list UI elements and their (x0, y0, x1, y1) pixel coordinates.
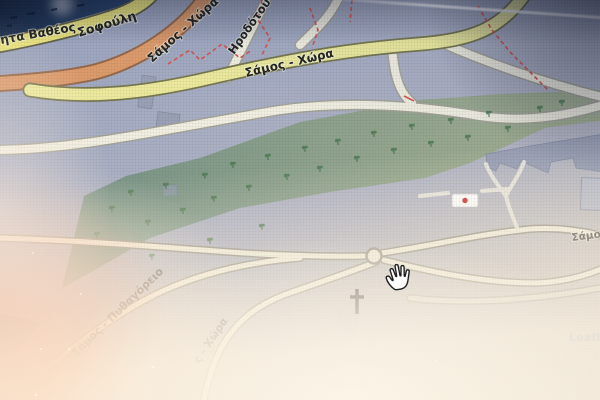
tree-icon (207, 238, 213, 244)
leaflet-attribution-link[interactable]: Leaflet (569, 331, 600, 344)
tree-icon (149, 254, 155, 260)
forest-area (0, 90, 600, 355)
map-canvas[interactable]: ητα Βαθέος Σοφούλη Σάμος - Χώρα Ηροδότου… (0, 0, 600, 400)
poi-red-dot-icon (462, 198, 467, 203)
label-pythagoreio: Σάμος - Πυθαγόρειο (69, 265, 166, 359)
label-primary-road: Σάμος - Χώρα (145, 0, 222, 65)
cross-icon (350, 289, 364, 314)
poi-marker[interactable] (452, 194, 478, 207)
forest-patch-small (0, 314, 42, 355)
grab-hand-cursor-icon (383, 262, 413, 292)
label-irodotou: Ηροδότου (225, 0, 274, 57)
roundabout (367, 249, 382, 264)
map-tiles: ητα Βαθέος Σοφούλη Σάμος - Χώρα Ηροδότου… (0, 0, 600, 400)
tree-icon (259, 224, 265, 230)
